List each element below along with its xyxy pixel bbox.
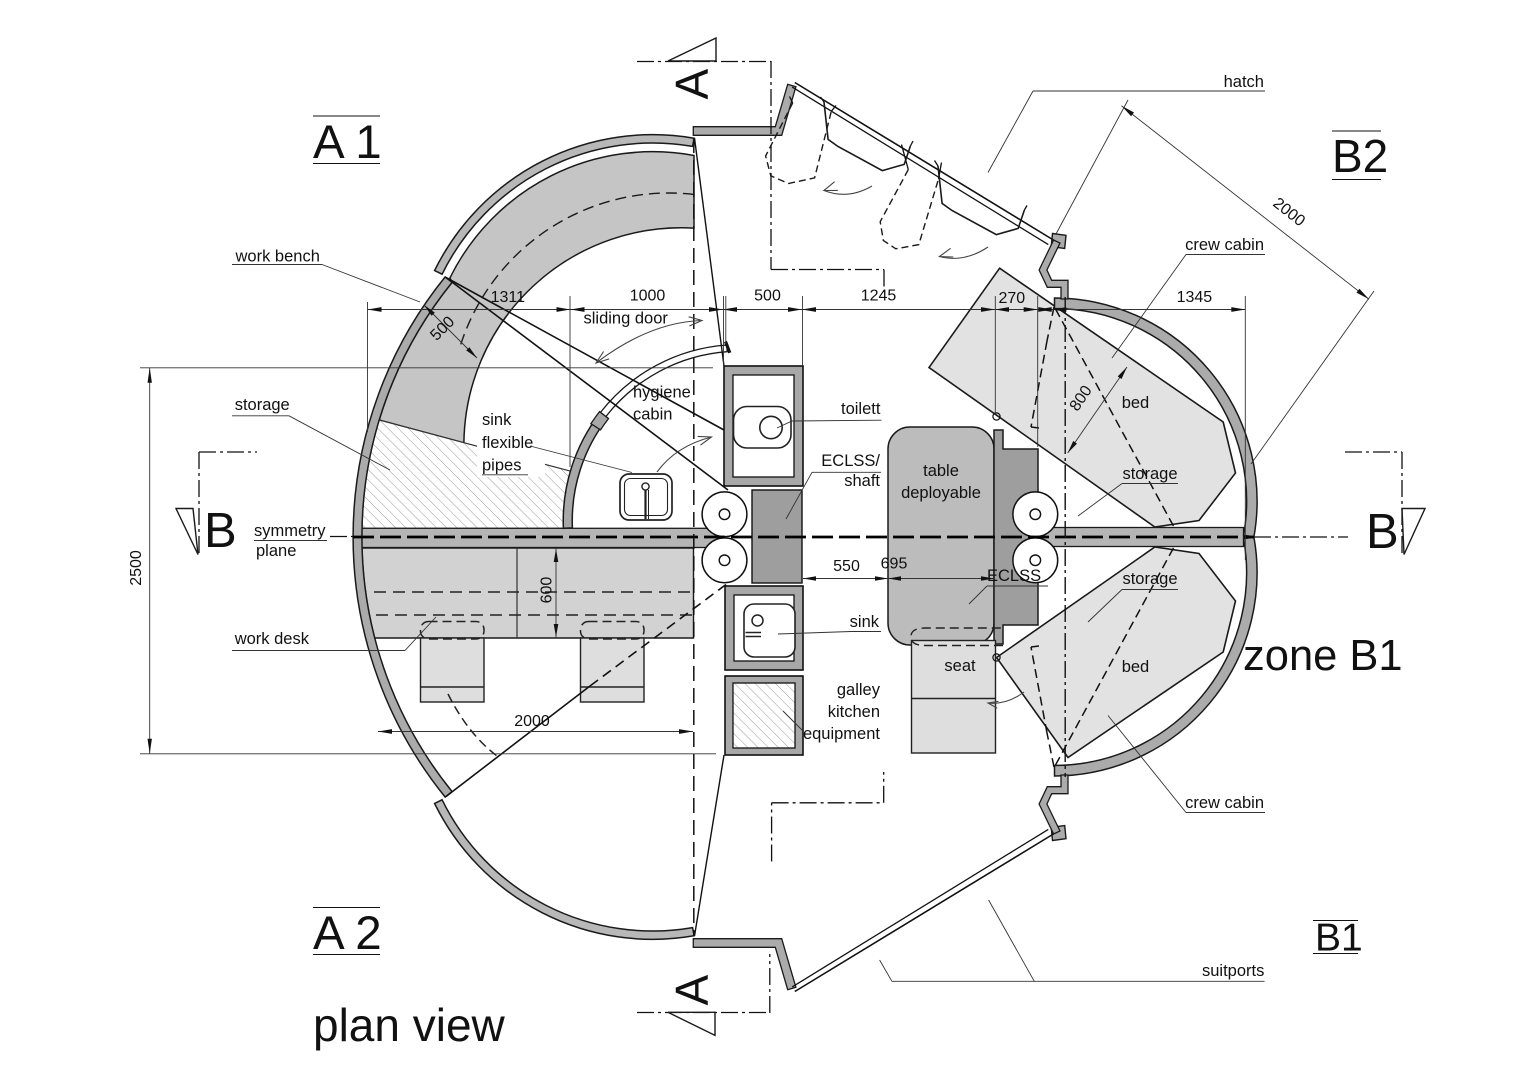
svg-text:kitchen: kitchen (828, 703, 880, 721)
svg-text:work bench: work bench (235, 248, 320, 266)
svg-text:storage: storage (1122, 465, 1177, 483)
svg-text:crew cabin: crew cabin (1185, 236, 1264, 254)
svg-text:600: 600 (539, 577, 556, 604)
svg-text:2500: 2500 (128, 550, 145, 586)
svg-text:storage: storage (1122, 570, 1177, 588)
svg-text:A 1: A 1 (313, 116, 382, 169)
svg-text:sink: sink (482, 411, 512, 429)
svg-text:work desk: work desk (234, 630, 310, 648)
svg-text:bed: bed (1122, 658, 1150, 676)
svg-text:storage: storage (235, 396, 290, 414)
svg-text:crew cabin: crew cabin (1185, 794, 1264, 812)
svg-text:hygiene: hygiene (633, 384, 691, 402)
svg-text:1000: 1000 (630, 288, 666, 305)
svg-text:galley: galley (837, 681, 881, 699)
svg-text:1245: 1245 (861, 288, 897, 305)
svg-text:hatch: hatch (1224, 73, 1264, 91)
svg-text:695: 695 (881, 556, 908, 573)
svg-text:seat: seat (944, 657, 976, 675)
svg-text:A 2: A 2 (313, 907, 382, 960)
svg-text:ECLSS: ECLSS (987, 567, 1041, 585)
svg-text:sliding door: sliding door (584, 310, 669, 328)
svg-text:plan view: plan view (313, 999, 506, 1051)
svg-text:A: A (666, 69, 718, 100)
svg-text:B2: B2 (1332, 130, 1388, 182)
svg-text:B: B (204, 504, 237, 558)
svg-text:deployable: deployable (901, 484, 981, 502)
svg-text:270: 270 (998, 290, 1025, 307)
svg-text:shaft: shaft (844, 472, 880, 490)
svg-text:sink: sink (850, 613, 880, 631)
svg-text:A: A (666, 975, 718, 1006)
svg-text:bed: bed (1122, 394, 1150, 412)
svg-text:pipes: pipes (482, 457, 521, 475)
svg-text:ECLSS/: ECLSS/ (821, 452, 880, 470)
svg-text:550: 550 (833, 558, 860, 575)
svg-text:2000: 2000 (514, 713, 550, 730)
svg-text:symmetry: symmetry (254, 522, 326, 540)
svg-text:cabin: cabin (633, 406, 672, 424)
svg-text:plane: plane (256, 542, 296, 560)
svg-text:equipment: equipment (803, 725, 880, 743)
svg-text:flexible: flexible (482, 434, 533, 452)
svg-text:B: B (1366, 505, 1399, 559)
svg-text:table: table (923, 462, 959, 480)
svg-text:500: 500 (754, 288, 781, 305)
svg-text:1345: 1345 (1177, 289, 1213, 306)
svg-text:suitports: suitports (1202, 962, 1264, 980)
svg-text:1311: 1311 (491, 289, 526, 306)
svg-text:zone B1: zone B1 (1243, 632, 1403, 680)
svg-text:toilett: toilett (841, 400, 881, 418)
